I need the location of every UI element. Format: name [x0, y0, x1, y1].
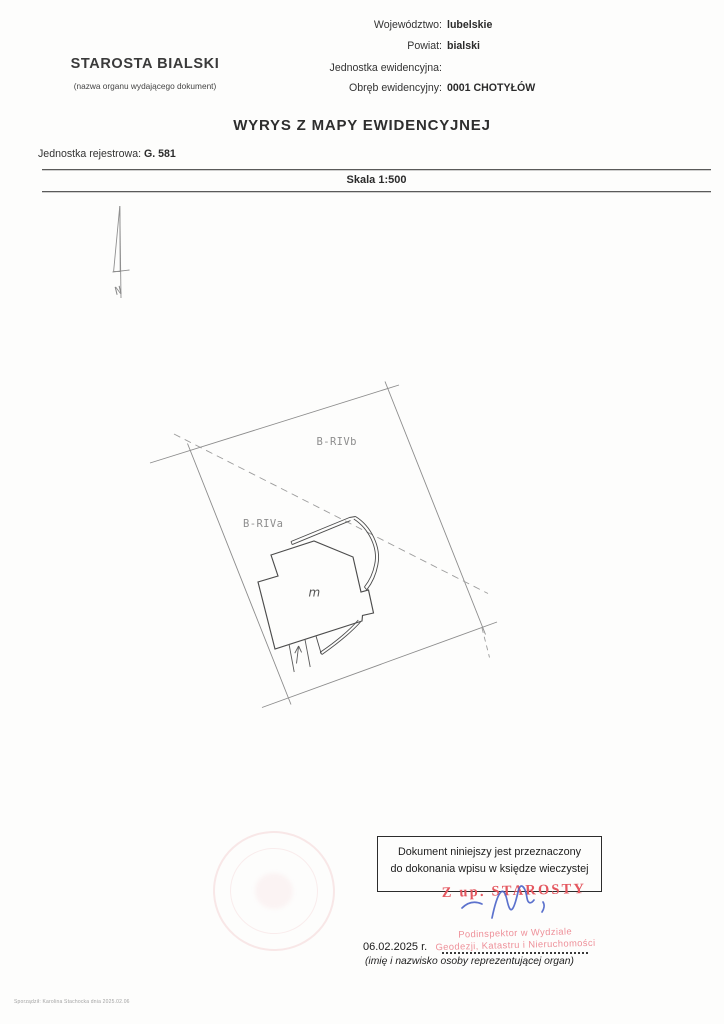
- entrance-arrow-icon: [295, 646, 302, 664]
- terrace-inner: [320, 620, 358, 652]
- label-land-class-upper: B-RIVb: [317, 436, 357, 448]
- north-label: N: [113, 284, 123, 298]
- signature-main-stroke: [492, 886, 534, 918]
- rear-wall-inner: [292, 521, 350, 545]
- north-arrow-head: [114, 206, 121, 272]
- rear-wall-outer: [291, 518, 350, 542]
- parcel-boundary-west: [188, 444, 292, 705]
- arrow-head-right: [299, 646, 302, 652]
- terrace-side: [316, 636, 321, 654]
- document-page: STAROSTA BIALSKI (nazwa organu wydająceg…: [0, 0, 724, 1024]
- rear-wall-cap: [291, 542, 292, 545]
- bay-arc-top-cap: [350, 517, 356, 518]
- driveway-line-right: [305, 640, 310, 668]
- north-arrow-icon: N: [113, 206, 130, 298]
- signature-comma: [542, 902, 544, 912]
- signature-caption: (imię i nazwisko osoby reprezentującej o…: [365, 956, 574, 967]
- issue-date: 06.02.2025 r.: [363, 941, 427, 953]
- class-boundary-continuation: [482, 628, 490, 658]
- land-use-boundary-dashed: [174, 434, 490, 658]
- purpose-notice-line2: do dokonania wpisu w księdze wieczystej: [378, 861, 601, 878]
- building-bay-arc: [350, 517, 379, 590]
- bay-arc-bottom-cap: [364, 587, 366, 590]
- purpose-notice-line1: Dokument niniejszy jest przeznaczony: [378, 844, 601, 861]
- parcel-boundary-north: [150, 385, 399, 463]
- driveway-marks: [289, 640, 310, 673]
- label-land-class-lower: B-RIVa: [243, 518, 283, 530]
- class-boundary-diagonal: [174, 434, 488, 594]
- signature-flourish: [462, 902, 482, 908]
- label-building-type: m: [309, 586, 321, 600]
- building-terrace-curve: [316, 620, 361, 655]
- parcel-boundary-south: [262, 622, 497, 708]
- handwritten-signature: [448, 876, 568, 926]
- building-rear-wall-double-line: [291, 518, 351, 545]
- driveway-line-left: [289, 644, 294, 672]
- signature-dotted-line: [442, 944, 588, 954]
- parcel-boundary-east: [385, 382, 486, 635]
- terrace-outer: [322, 622, 361, 655]
- cadastral-map: N: [0, 0, 724, 1024]
- prepared-by-note: Sporządził: Karolina Stachocka dnia 2025…: [14, 999, 130, 1005]
